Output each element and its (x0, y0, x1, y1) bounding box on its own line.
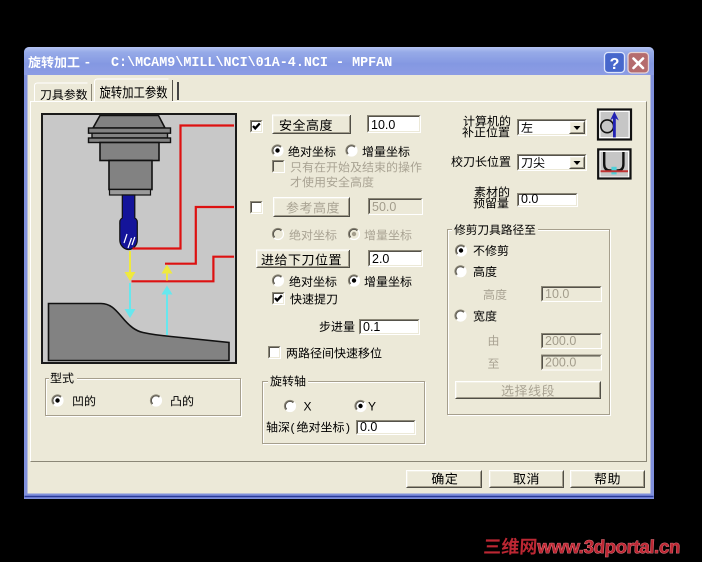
svg-text:2.0: 2.0 (372, 252, 389, 266)
svg-text:200.0: 200.0 (545, 334, 576, 348)
svg-text:Y: Y (368, 400, 376, 414)
svg-text:-: - (84, 55, 92, 70)
svg-text:): ) (346, 421, 350, 435)
svg-text:0.0: 0.0 (360, 420, 377, 434)
svg-text:(: ( (291, 421, 295, 435)
svg-text:0.1: 0.1 (363, 320, 380, 334)
svg-text:?: ? (610, 56, 620, 73)
svg-text:0.0: 0.0 (521, 192, 538, 206)
svg-text:www.3dportal.cn: www.3dportal.cn (536, 536, 681, 557)
svg-text:200.0: 200.0 (545, 356, 576, 370)
svg-text:C:\MCAM9\MILL\NCI\01A-4.NCI -: C:\MCAM9\MILL\NCI\01A-4.NCI - MPFAN (111, 56, 392, 71)
svg-text:10.0: 10.0 (545, 287, 569, 301)
svg-text:X: X (304, 400, 312, 414)
svg-text:50.0: 50.0 (372, 200, 396, 214)
svg-text:10.0: 10.0 (371, 118, 395, 132)
